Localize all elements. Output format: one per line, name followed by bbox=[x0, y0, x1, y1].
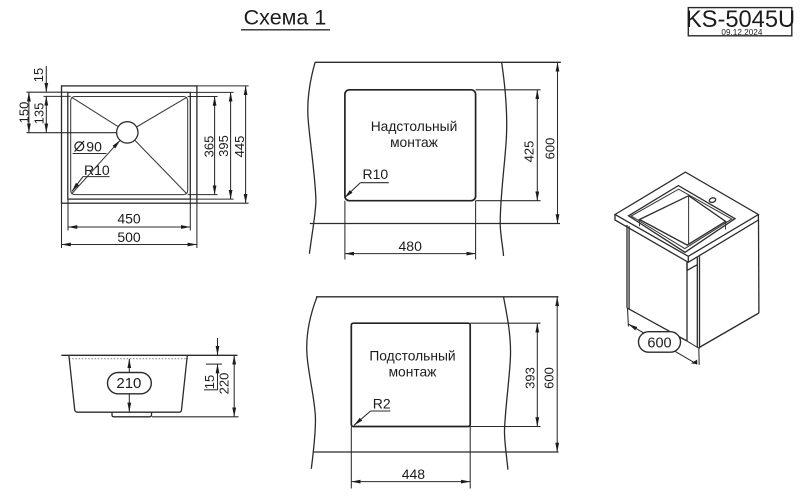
svg-text:монтаж: монтаж bbox=[389, 364, 438, 379]
svg-text:R10: R10 bbox=[84, 162, 110, 178]
svg-text:Подстольный: Подстольный bbox=[369, 349, 455, 364]
svg-text:600: 600 bbox=[542, 367, 557, 389]
svg-text:480: 480 bbox=[399, 238, 423, 254]
svg-text:15: 15 bbox=[202, 375, 217, 389]
svg-text:600: 600 bbox=[543, 138, 558, 160]
svg-text:220: 220 bbox=[217, 373, 232, 395]
svg-text:монтаж: монтаж bbox=[390, 135, 439, 150]
svg-text:Схема 1: Схема 1 bbox=[244, 6, 327, 30]
svg-text:135: 135 bbox=[32, 103, 47, 125]
svg-text:09.12.2024: 09.12.2024 bbox=[721, 28, 762, 37]
svg-text:500: 500 bbox=[117, 229, 141, 245]
svg-text:90: 90 bbox=[86, 139, 102, 155]
svg-text:445: 445 bbox=[232, 136, 247, 158]
svg-text:R10: R10 bbox=[363, 166, 389, 182]
svg-text:365: 365 bbox=[201, 136, 216, 158]
svg-text:448: 448 bbox=[402, 466, 426, 482]
svg-text:425: 425 bbox=[522, 141, 537, 163]
svg-text:600: 600 bbox=[647, 335, 671, 351]
svg-text:395: 395 bbox=[216, 135, 231, 157]
svg-text:R2: R2 bbox=[373, 396, 391, 412]
svg-text:Надстольный: Надстольный bbox=[371, 119, 458, 134]
svg-text:450: 450 bbox=[117, 211, 141, 227]
svg-text:210: 210 bbox=[116, 375, 141, 392]
svg-text:15: 15 bbox=[31, 68, 46, 82]
svg-text:393: 393 bbox=[523, 367, 538, 389]
